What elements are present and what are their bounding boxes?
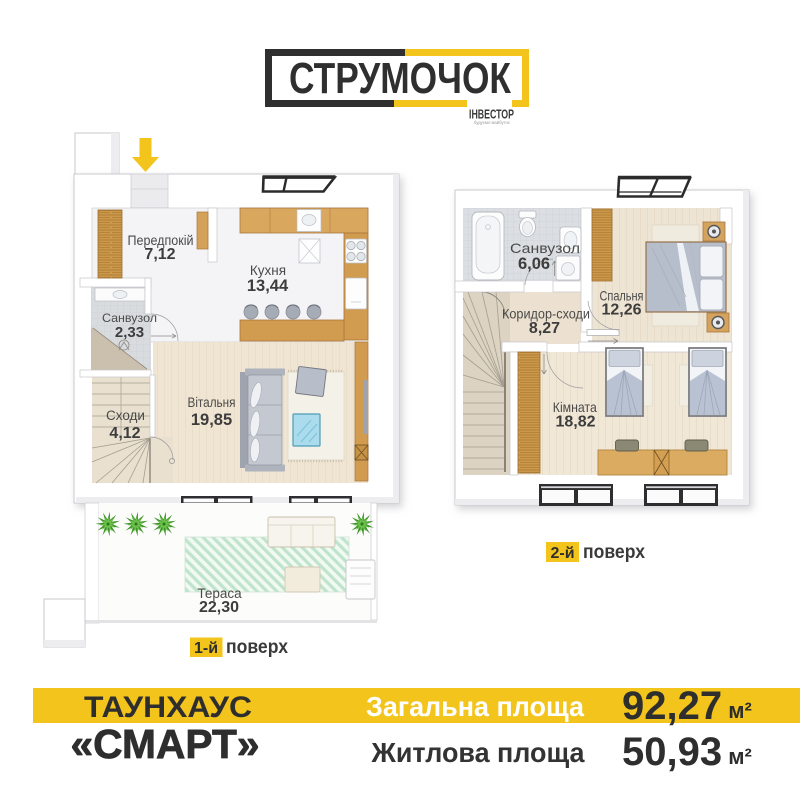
svg-text:18,82: 18,82 xyxy=(555,414,595,431)
svg-text:Санвузол: Санвузол xyxy=(102,311,157,325)
svg-text:Санвузол: Санвузол xyxy=(510,240,580,256)
svg-text:7,12: 7,12 xyxy=(144,246,175,263)
svg-text:Сходи: Сходи xyxy=(106,408,145,423)
svg-text:поверх: поверх xyxy=(583,542,645,563)
svg-text:4,12: 4,12 xyxy=(109,425,140,442)
svg-text:12,26: 12,26 xyxy=(601,302,641,319)
svg-text:ТАУНХАУС: ТАУНХАУС xyxy=(84,691,252,724)
svg-text:Кухня: Кухня xyxy=(250,263,286,278)
svg-text:Загальна площа: Загальна площа xyxy=(366,691,584,722)
svg-text:8,27: 8,27 xyxy=(529,320,560,337)
svg-text:13,44: 13,44 xyxy=(247,277,289,295)
svg-text:СТРУМОЧОК: СТРУМОЧОК xyxy=(289,54,511,103)
svg-text:22,30: 22,30 xyxy=(199,599,239,616)
svg-text:Житлова площа: Житлова площа xyxy=(371,737,585,768)
svg-text:19,85: 19,85 xyxy=(191,411,232,429)
svg-text:1-й: 1-й xyxy=(194,640,218,657)
svg-text:будуємо майбутнє: будуємо майбутнє xyxy=(474,120,511,125)
svg-text:Вітальня: Вітальня xyxy=(188,394,236,410)
svg-text:2,33: 2,33 xyxy=(115,324,144,341)
svg-text:«СМАРТ»: «СМАРТ» xyxy=(71,721,260,767)
svg-text:6,06: 6,06 xyxy=(518,255,550,273)
svg-text:2-й: 2-й xyxy=(550,545,574,562)
svg-text:поверх: поверх xyxy=(226,637,288,658)
